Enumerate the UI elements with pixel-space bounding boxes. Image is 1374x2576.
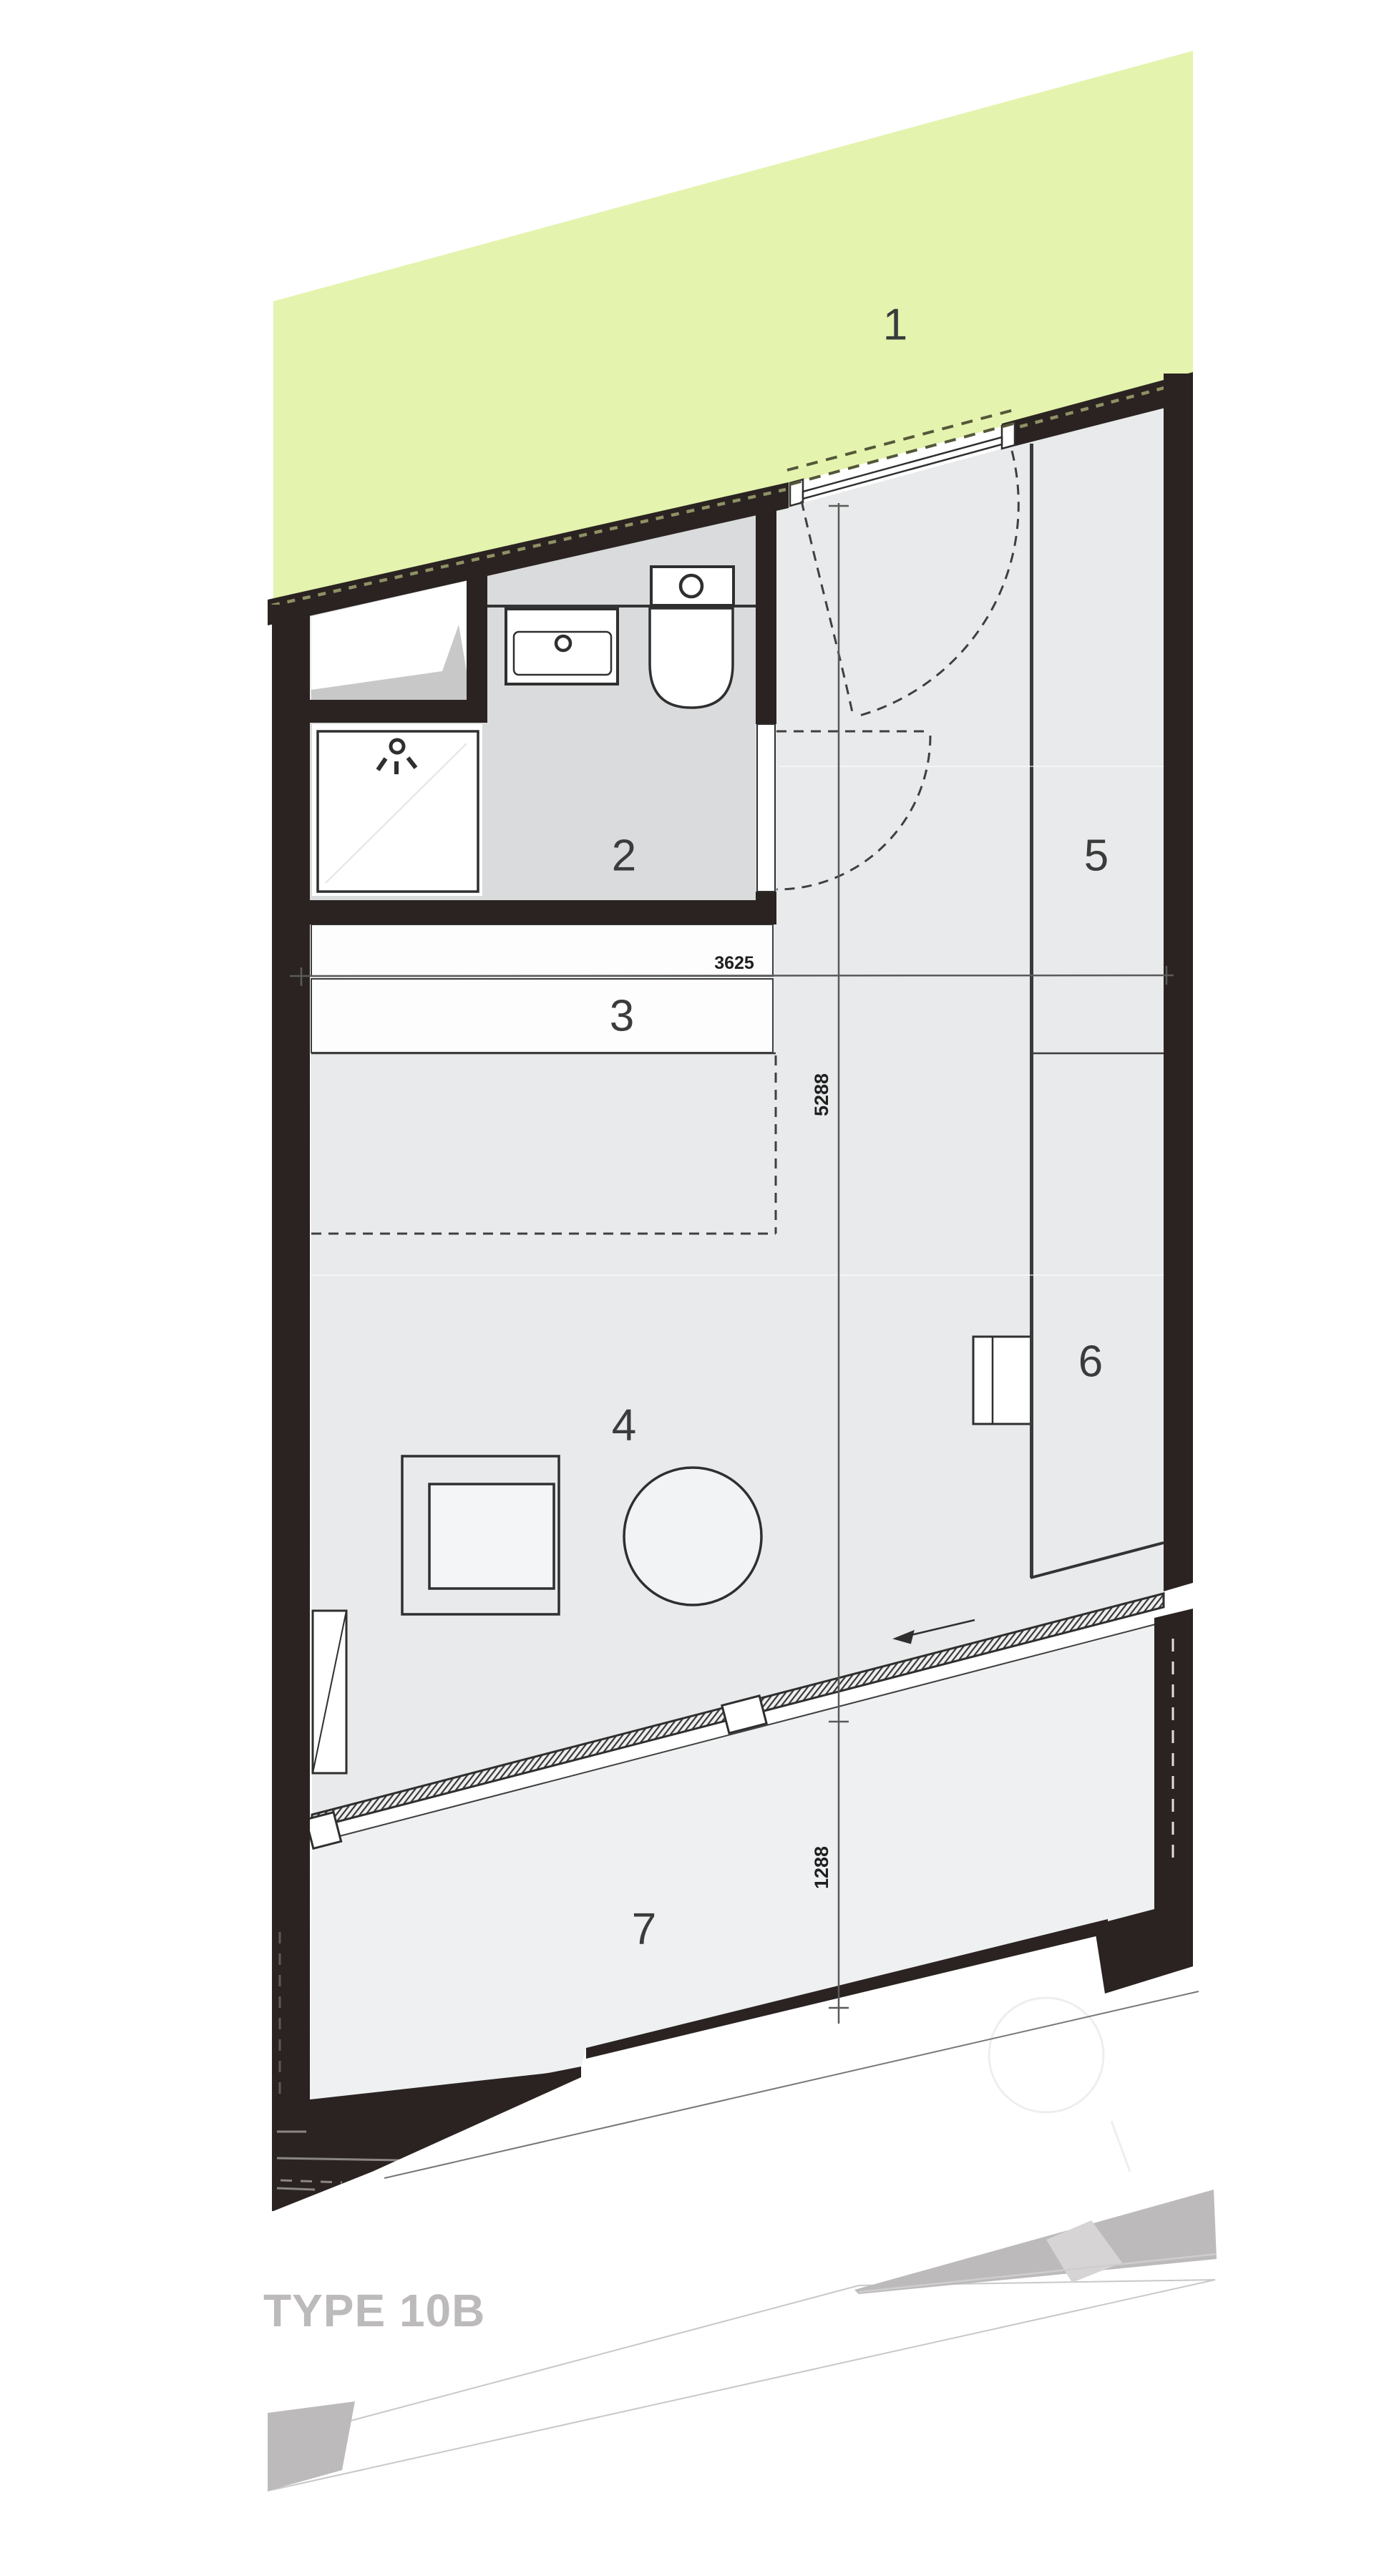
svg-text:5288: 5288 bbox=[811, 1073, 832, 1116]
svg-text:6: 6 bbox=[1078, 1337, 1103, 1387]
svg-text:3: 3 bbox=[610, 992, 634, 1041]
svg-text:2: 2 bbox=[612, 831, 636, 881]
svg-text:7: 7 bbox=[632, 1905, 656, 1954]
svg-text:5: 5 bbox=[1084, 831, 1109, 881]
svg-text:3625: 3625 bbox=[714, 953, 754, 973]
svg-text:4: 4 bbox=[612, 1401, 636, 1450]
svg-text:1288: 1288 bbox=[811, 1846, 832, 1889]
svg-text:1: 1 bbox=[883, 301, 907, 350]
svg-text:TYPE 10B: TYPE 10B bbox=[263, 2285, 485, 2336]
